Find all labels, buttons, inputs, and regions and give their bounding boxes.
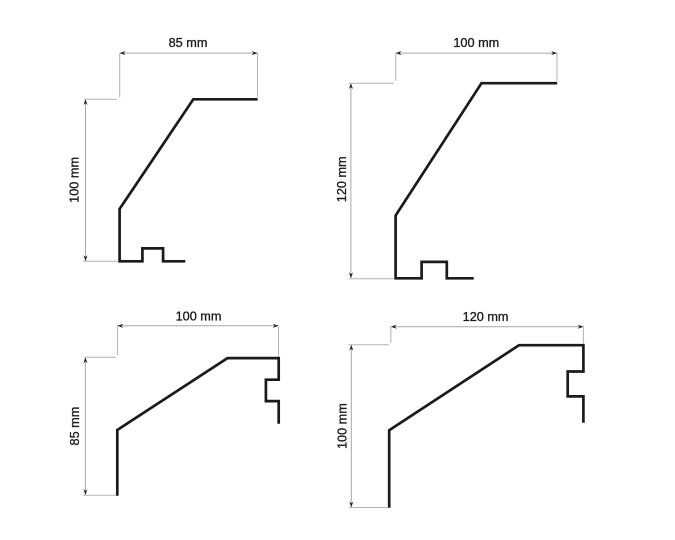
svg-text:120 mm: 120 mm (335, 156, 349, 202)
svg-text:100 mm: 100 mm (453, 36, 499, 50)
svg-text:100 mm: 100 mm (67, 157, 81, 203)
svg-text:85 mm: 85 mm (68, 407, 82, 446)
svg-text:85 mm: 85 mm (169, 36, 208, 50)
svg-text:100 mm: 100 mm (176, 309, 222, 323)
svg-text:120 mm: 120 mm (463, 310, 509, 324)
svg-text:100 mm: 100 mm (335, 403, 349, 449)
